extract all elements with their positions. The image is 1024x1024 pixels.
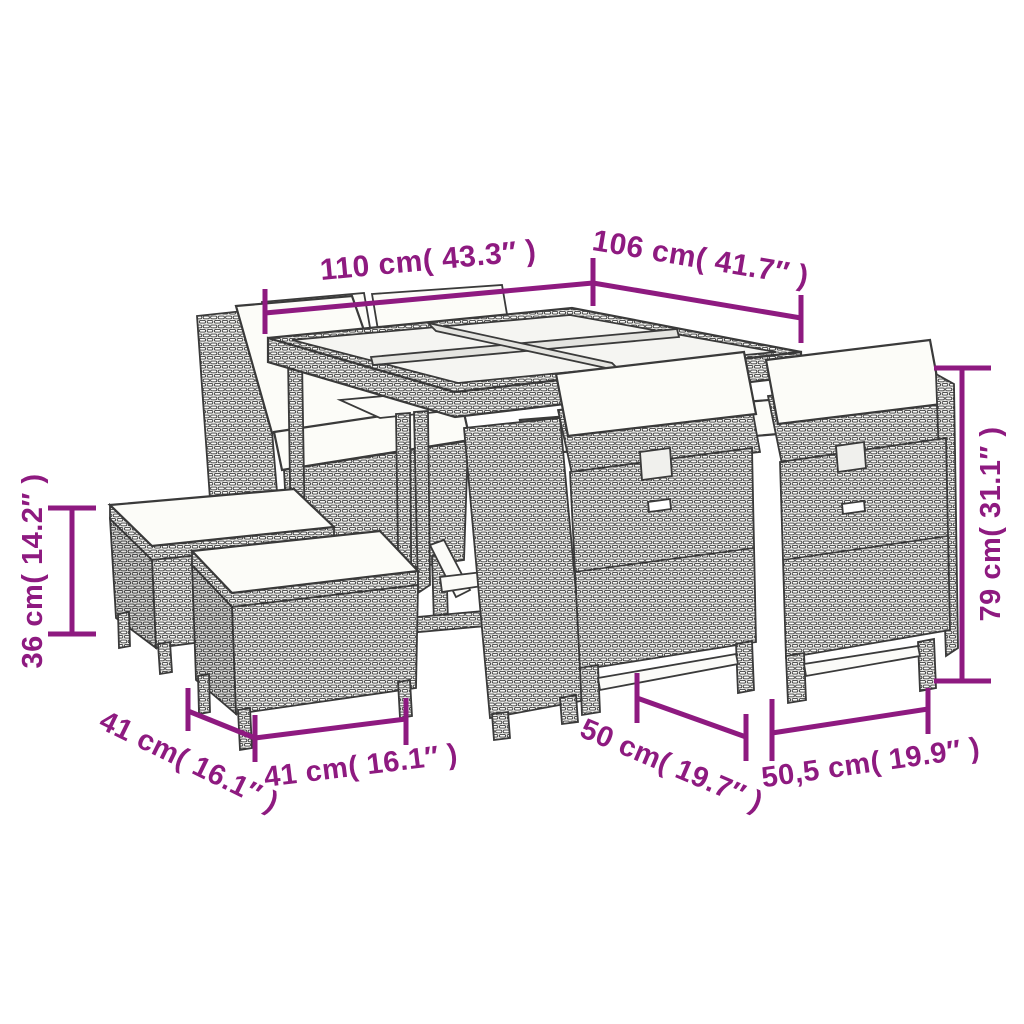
stool-front-face xyxy=(232,585,418,714)
dim-label-chair-height: 79 cm( 31.1″ ) xyxy=(975,427,1007,622)
chair-seat-box xyxy=(570,448,756,670)
dim-label-stool-height: 36 cm( 14.2″ ) xyxy=(17,474,49,669)
product-dimension-diagram: 110 cm( 43.3″ ) 106 cm( 41.7″ ) 79 cm( 3… xyxy=(0,0,1024,1024)
dim-chair-depth: 50 cm( 19.7″ ) xyxy=(576,673,768,819)
dim-line xyxy=(593,283,801,318)
chair-side-panel xyxy=(464,418,586,718)
chair-foot xyxy=(492,712,510,740)
dim-label-chair-depth: 50 cm( 19.7″ ) xyxy=(576,713,768,819)
chair-foot xyxy=(560,695,578,724)
chair-clip-detail xyxy=(640,448,672,480)
dim-stool-height: 36 cm( 14.2″ ) xyxy=(17,474,96,669)
dim-line xyxy=(772,709,928,733)
dim-chair-width: 50,5 cm( 19.9″ ) xyxy=(759,688,981,794)
stool-front xyxy=(192,531,418,750)
chair-leg xyxy=(580,665,600,715)
dim-label-chair-width: 50,5 cm( 19.9″ ) xyxy=(759,732,981,794)
chair-clip-detail xyxy=(842,501,865,514)
stool-leg xyxy=(118,612,130,648)
stool-leg xyxy=(158,642,172,674)
stool-leg xyxy=(238,708,252,750)
dim-line xyxy=(637,698,746,737)
diagram-canvas: 110 cm( 43.3″ ) 106 cm( 41.7″ ) 79 cm( 3… xyxy=(0,0,1024,1024)
chair-clip-detail xyxy=(836,442,866,472)
chair-leg xyxy=(918,639,936,691)
dim-label-table-depth: 106 cm( 41.7″ ) xyxy=(590,224,811,293)
dim-line xyxy=(255,719,406,738)
front-chair-right xyxy=(766,340,958,703)
dim-label-stool-width: 41 cm( 16.1″ ) xyxy=(262,738,459,794)
dim-stool-width: 41 cm( 16.1″ ) xyxy=(255,698,460,794)
chair-leg xyxy=(786,653,806,703)
stool-leg xyxy=(198,674,210,714)
dim-label-table-width: 110 cm( 43.3″ ) xyxy=(319,234,538,287)
chair-clip-detail xyxy=(648,499,671,512)
chair-leg xyxy=(736,641,754,693)
